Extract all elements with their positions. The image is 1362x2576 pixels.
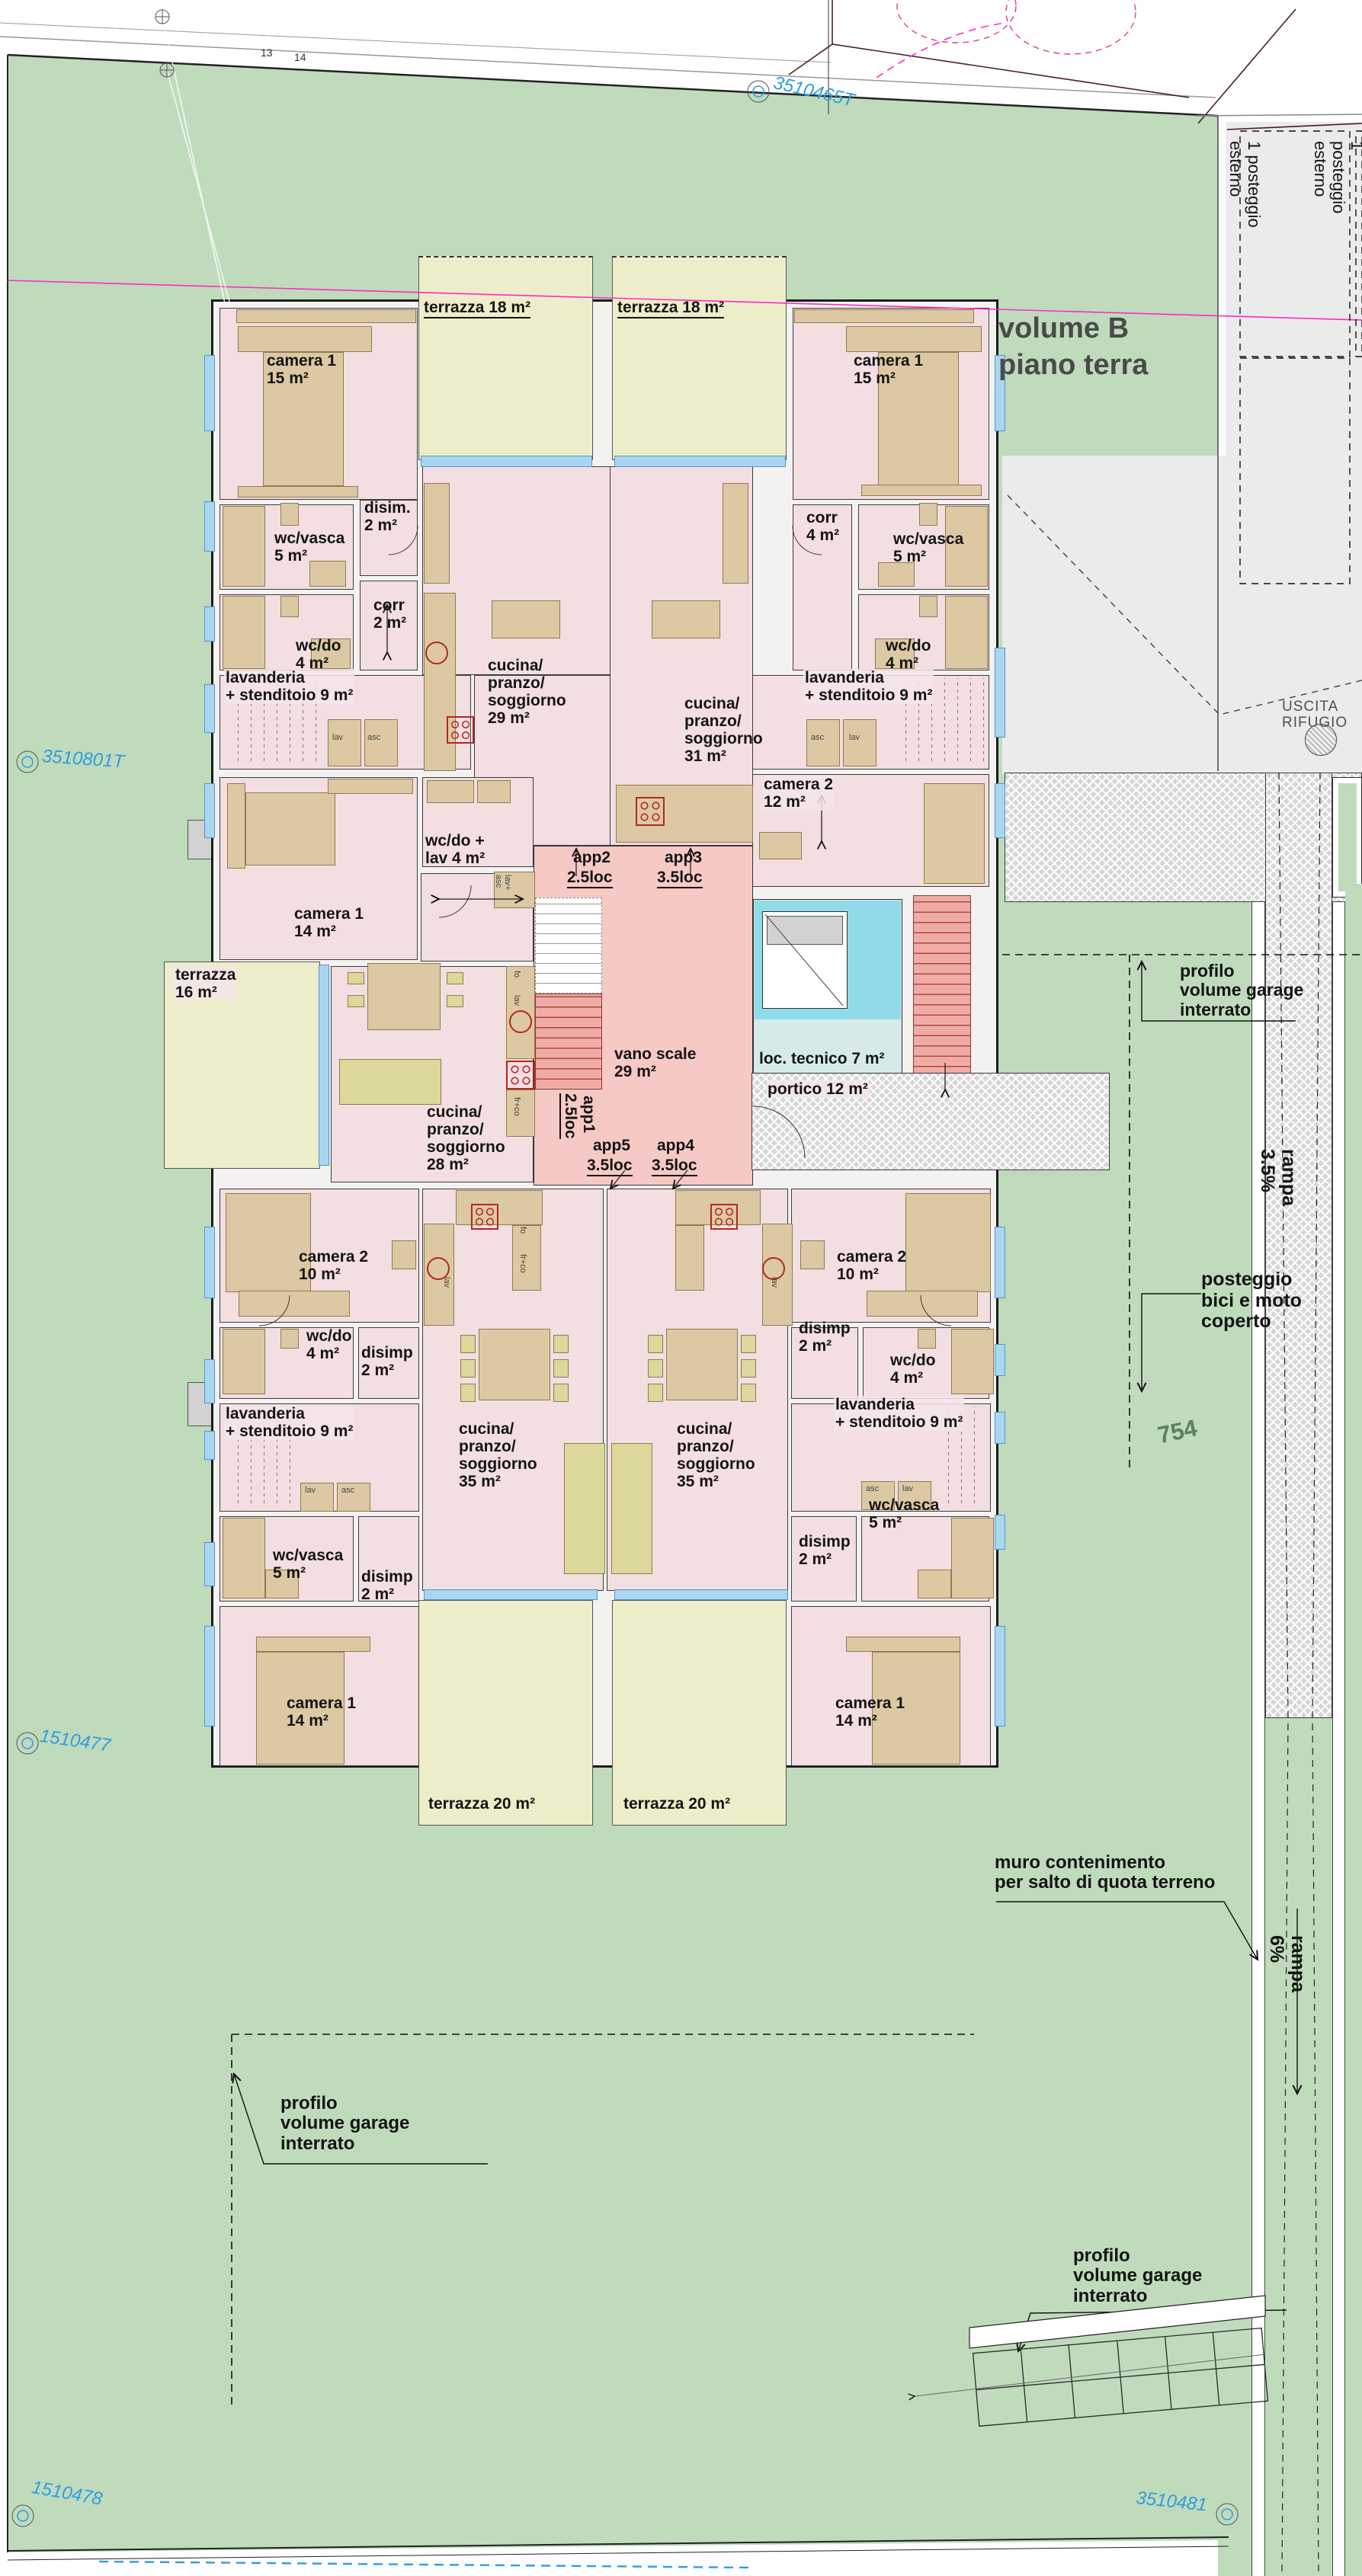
room-label: cucina/ pranzo/ soggiorno 29 m² [488,657,566,727]
annotation: rampa 6% [1266,1935,1308,1992]
appliance-label: asc [811,733,824,742]
appliance-label: lav [849,733,860,742]
appliance-label: lav [442,1277,451,1288]
appliance-label: asc [866,1484,879,1493]
room-label: camera 2 12 m² [762,776,835,811]
appliance-label: lav [305,1486,316,1495]
appliance-label: fr+co [518,1254,527,1273]
room-label: camera 1 14 m² [835,1694,905,1730]
appliance-label: fo [512,971,521,978]
room-label: wc/do + lav 4 m² [425,832,485,867]
apartment-tag: app5 [593,1137,630,1154]
apartment-tag: 2.5loc [559,1093,579,1139]
room-label: wc/vasca 5 m² [893,530,963,565]
dashed-ellipses [897,0,1136,54]
room-label: disimp 2 m² [799,1533,851,1568]
room-label: camera 2 10 m² [299,1248,368,1283]
terrace-label: terrazza 18 m² [617,299,724,318]
drawing-title: volume B piano terra [998,311,1148,383]
room-label: wc/do 4 m² [886,637,931,672]
magenta-boundary [8,23,1362,320]
ramp-dashed-lines [1279,773,1320,2576]
room-label: portico 12 m² [766,1080,870,1098]
room-label: disimp 2 m² [361,1344,413,1379]
annotation: profilo volume garage interrato [1180,962,1303,1019]
plan-linework [0,0,1362,2576]
point-number: 14 [294,52,306,63]
room-label: lavanderia + stenditoio 9 m² [224,669,354,704]
room-label: wc/do 4 m² [306,1327,352,1362]
parking-stall-label: 1 posteggio esterno [1310,141,1362,213]
appliance-label: lav [332,733,343,742]
room-label: cucina/ pranzo/ soggiorno 35 m² [677,1420,755,1490]
shelter-exit-path [1008,495,1362,715]
blue-dashed-line [99,2562,751,2568]
room-label: cucina/ pranzo/ soggiorno 31 m² [684,695,763,765]
room-label: wc/do 4 m² [296,637,341,672]
room-label: corr 4 m² [806,509,839,544]
apartment-tag: 3.5loc [652,1157,697,1176]
room-label: wc/do 4 m² [890,1352,936,1387]
annotation: profilo volume garage interrato [1073,2246,1202,2306]
appliance-label: lav+ asc [494,875,512,891]
appliance-label: asc [341,1486,354,1495]
annotation: profilo volume garage interrato [280,2094,409,2154]
point-number: 13 [261,47,273,59]
annotation: USCITA RIFUGIO [1282,699,1362,731]
annotation: muro contenimento per salto di quota ter… [995,1853,1215,1893]
room-label: camera 2 10 m² [837,1248,906,1283]
room-label: camera 1 14 m² [287,1694,356,1730]
apartment-tag: app3 [665,849,702,866]
road-lines [0,23,1216,98]
apartment-tag: app2 [573,849,610,866]
appliance-label: lav [770,1277,779,1288]
room-label: wc/vasca 5 m² [274,530,345,565]
apartment-tag: 3.5loc [657,869,703,888]
room-label: disim. 2 m² [364,499,411,534]
cadastral-lines [162,17,230,305]
annotation: posteggio bici e moto coperto [1201,1269,1302,1333]
appliance-label: fo [518,1227,527,1234]
room-label: cucina/ pranzo/ soggiorno 35 m² [459,1420,537,1490]
apartment-tag: 3.5loc [587,1157,633,1176]
terrace-label: terrazza 18 m² [424,299,530,318]
survey-markers [12,10,1238,2526]
room-label: wc/vasca 5 m² [273,1547,343,1582]
annotation: rampa 3.5% [1257,1149,1299,1212]
room-label: cucina/ pranzo/ soggiorno 28 m² [427,1103,505,1173]
site-boundary [8,55,1229,2560]
room-label: disimp 2 m² [361,1568,413,1603]
room-label: corr 2 m² [373,597,406,632]
terrace-label: terrazza 20 m² [428,1795,535,1813]
room-label: wc/vasca 5 m² [869,1496,939,1531]
pergola-grid [915,2296,1267,2426]
room-label: loc. tecnico 7 m² [759,1050,885,1067]
parking-stall-label: 1 posteggio esterno [1226,141,1263,240]
room-label: camera 1 15 m² [267,352,336,387]
room-label: camera 1 14 m² [294,905,364,940]
room-label: vano scale 29 m² [614,1045,696,1080]
apartment-tag: app4 [657,1137,694,1154]
room-label: terrazza 16 m² [174,966,237,1001]
room-label: camera 1 15 m² [854,352,923,387]
elevator-diagonal [765,914,843,1006]
room-label: lavanderia + stenditoio 9 m² [803,669,934,704]
curb-line [1195,114,1362,116]
room-label: disimp 2 m² [799,1320,851,1355]
appliance-label: lav [902,1484,913,1493]
room-label: lavanderia + stenditoio 9 m² [834,1396,964,1431]
apartment-tag: 2.5loc [567,869,613,888]
site-plan-drawing: volume B piano terra terrazza 18 m²terra… [0,0,1362,2576]
appliance-label: asc [367,733,380,742]
room-label: lavanderia + stenditoio 9 m² [224,1405,354,1440]
appliance-label: fr+co [512,1097,521,1116]
garage-profile-dashed [232,955,1362,2409]
terrace-label: terrazza 20 m² [623,1795,730,1813]
apartment-tag: app1 [580,1096,598,1133]
existing-building-outlines [789,0,1362,130]
appliance-label: lav [512,995,521,1006]
